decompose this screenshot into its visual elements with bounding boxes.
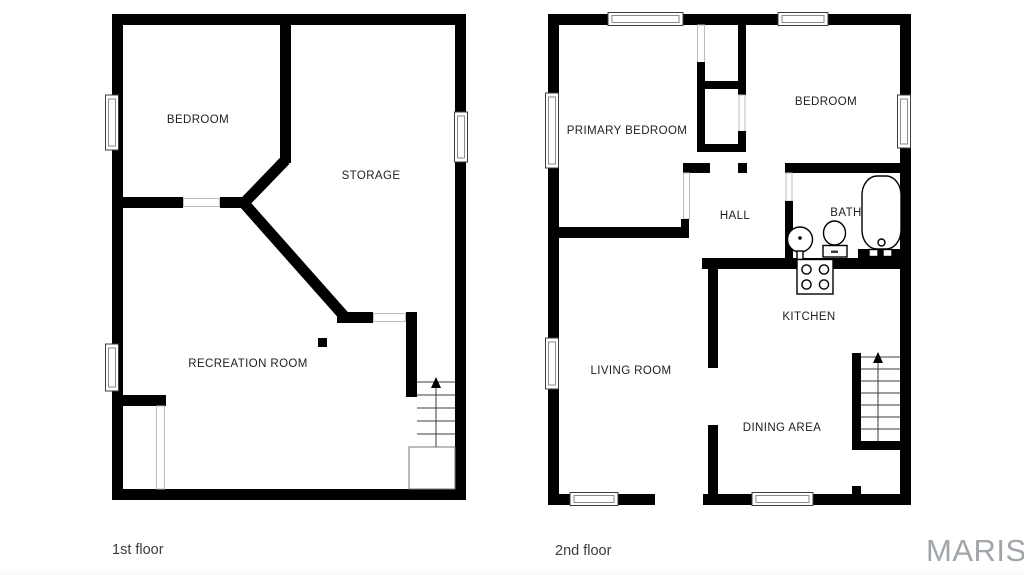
room-label-living-room: LIVING ROOM: [590, 365, 671, 377]
window-icon: [752, 493, 813, 506]
first-floor-walls: [112, 14, 466, 500]
floor-caption-first: 1st floor: [112, 542, 164, 558]
window-icon: [106, 344, 119, 391]
window-icon: [455, 112, 468, 162]
window-icon: [778, 13, 828, 26]
room-label-recreation: RECREATION ROOM: [188, 358, 308, 370]
window-icon: [546, 338, 559, 389]
room-label-kitchen: KITCHEN: [782, 311, 835, 323]
window-icon: [570, 493, 618, 506]
second-floor-walls: [548, 14, 911, 505]
room-label-bath: BATH: [830, 207, 861, 219]
maris-watermark: MARIS: [926, 533, 1024, 569]
window-icon: [608, 13, 683, 26]
floor-caption-second: 2nd floor: [555, 543, 611, 559]
bottom-edge-strip: [0, 569, 1024, 575]
stove-icon: [797, 260, 833, 295]
window-icon: [106, 95, 119, 150]
window-icon: [546, 93, 559, 168]
room-label-bedroom-2f: BEDROOM: [795, 96, 857, 108]
second-floor-plan: [546, 13, 912, 506]
room-label-storage: STORAGE: [342, 170, 401, 182]
floor-plan-page: BEDROOM STORAGE RECREATION ROOM PRIMARY …: [0, 0, 1024, 575]
second-floor-stairs: [861, 352, 900, 441]
toilet-icon: [823, 221, 847, 257]
room-label-bedroom-1f: BEDROOM: [167, 114, 229, 126]
bathtub-icon: [862, 176, 901, 257]
room-label-dining-area: DINING AREA: [743, 422, 822, 434]
floor-plan-drawing: [0, 0, 1024, 575]
room-label-hall: HALL: [720, 210, 750, 222]
stair-landing: [409, 447, 455, 489]
window-icon: [898, 95, 911, 148]
room-label-primary-bedroom: PRIMARY BEDROOM: [567, 125, 688, 137]
first-floor-plan: [106, 14, 468, 500]
